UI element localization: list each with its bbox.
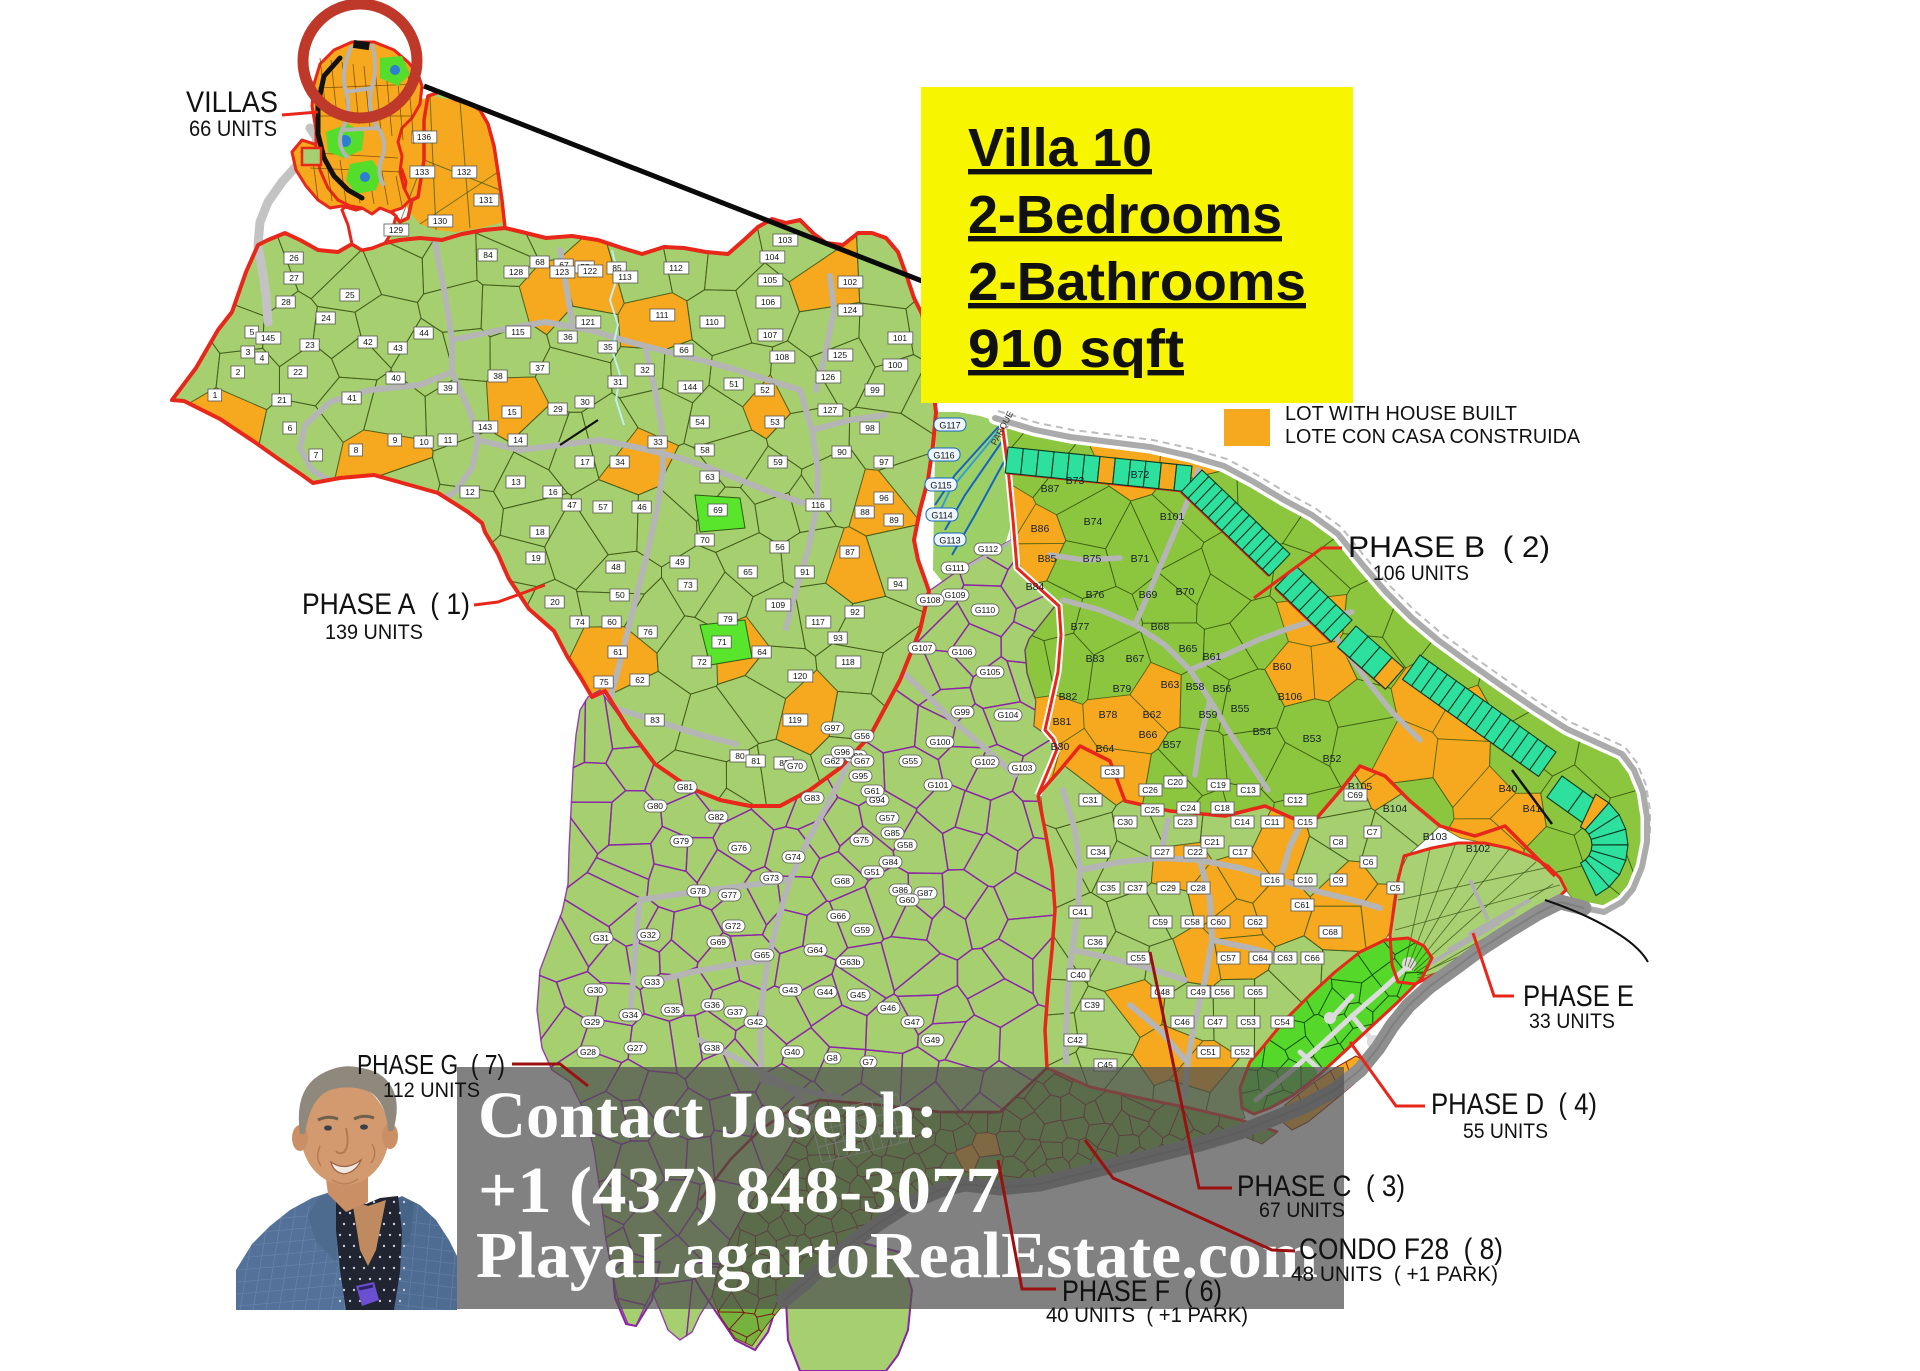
svg-text:G95: G95 — [852, 771, 868, 781]
svg-text:40 UNITS ( +1 PARK): 40 UNITS ( +1 PARK) — [1046, 1304, 1248, 1327]
svg-text:G60: G60 — [899, 895, 915, 905]
svg-text:124: 124 — [843, 305, 857, 315]
svg-text:B41: B41 — [1523, 803, 1542, 815]
svg-text:B102: B102 — [1466, 843, 1491, 855]
svg-text:23: 23 — [305, 340, 315, 350]
svg-text:C52: C52 — [1234, 1047, 1250, 1057]
svg-text:7: 7 — [314, 450, 319, 460]
svg-text:G28: G28 — [580, 1047, 596, 1057]
svg-text:C37: C37 — [1127, 883, 1143, 893]
svg-text:G101: G101 — [928, 780, 949, 790]
svg-text:G117: G117 — [939, 421, 960, 431]
svg-text:G65: G65 — [754, 950, 770, 960]
svg-text:71: 71 — [717, 637, 727, 647]
svg-text:119: 119 — [788, 715, 802, 725]
svg-text:32: 32 — [640, 365, 650, 375]
svg-text:G74: G74 — [785, 852, 801, 862]
svg-text:89: 89 — [889, 515, 899, 525]
svg-text:C61: C61 — [1294, 900, 1310, 910]
svg-text:31: 31 — [613, 377, 623, 387]
svg-text:G107: G107 — [912, 643, 933, 653]
svg-text:101: 101 — [893, 333, 907, 343]
svg-text:C28: C28 — [1190, 883, 1206, 893]
svg-text:G55: G55 — [902, 756, 918, 766]
svg-text:113: 113 — [618, 272, 632, 282]
svg-text:8: 8 — [354, 445, 359, 455]
svg-text:G105: G105 — [980, 667, 1001, 677]
svg-text:G78: G78 — [690, 886, 706, 896]
svg-text:C31: C31 — [1082, 795, 1098, 805]
svg-text:60: 60 — [607, 617, 617, 627]
svg-text:56: 56 — [775, 542, 785, 552]
svg-text:G83: G83 — [804, 793, 820, 803]
svg-text:G110: G110 — [975, 605, 995, 615]
svg-text:24: 24 — [321, 313, 331, 323]
svg-text:118: 118 — [841, 657, 855, 667]
svg-text:91: 91 — [800, 567, 810, 577]
svg-text:33 UNITS: 33 UNITS — [1529, 1010, 1615, 1033]
svg-text:133: 133 — [415, 167, 429, 177]
svg-text:14: 14 — [513, 435, 523, 445]
svg-text:G33: G33 — [644, 977, 660, 987]
svg-text:B53: B53 — [1303, 733, 1322, 745]
svg-text:C13: C13 — [1240, 785, 1256, 795]
svg-text:B79: B79 — [1113, 683, 1132, 695]
svg-text:27: 27 — [289, 273, 299, 283]
svg-text:92: 92 — [850, 607, 860, 617]
svg-text:CONDO F28 ( 8): CONDO F28 ( 8) — [1299, 1233, 1503, 1266]
svg-text:LOT WITH HOUSE BUILT: LOT WITH HOUSE BUILT — [1285, 403, 1517, 425]
svg-text:B70: B70 — [1176, 586, 1195, 598]
svg-text:116: 116 — [811, 500, 825, 510]
svg-text:C49: C49 — [1190, 987, 1206, 997]
svg-text:143: 143 — [478, 422, 492, 432]
svg-text:2-Bathrooms: 2-Bathrooms — [968, 252, 1306, 312]
svg-text:81: 81 — [751, 756, 761, 766]
svg-text:B77: B77 — [1071, 621, 1090, 633]
svg-text:B56: B56 — [1213, 683, 1232, 695]
svg-text:LOTE CON CASA CONSTRUIDA: LOTE CON CASA CONSTRUIDA — [1285, 426, 1581, 448]
svg-text:B84: B84 — [1026, 581, 1045, 593]
svg-text:66 UNITS: 66 UNITS — [189, 116, 277, 141]
svg-text:B71: B71 — [1131, 553, 1150, 565]
svg-text:120: 120 — [793, 671, 807, 681]
svg-text:B52: B52 — [1323, 753, 1342, 765]
svg-text:G84: G84 — [882, 857, 898, 867]
svg-text:84: 84 — [483, 250, 493, 260]
svg-text:C12: C12 — [1287, 795, 1303, 805]
svg-text:139 UNITS: 139 UNITS — [325, 621, 423, 644]
svg-text:55 UNITS: 55 UNITS — [1463, 1120, 1548, 1143]
svg-text:57: 57 — [598, 502, 608, 512]
svg-text:2: 2 — [236, 367, 241, 377]
svg-text:52: 52 — [760, 385, 770, 395]
svg-text:G35: G35 — [664, 1005, 680, 1015]
svg-text:C54: C54 — [1274, 1017, 1290, 1027]
svg-text:G37: G37 — [727, 1007, 743, 1017]
svg-text:C9: C9 — [1333, 875, 1344, 885]
svg-text:PHASE G ( 7): PHASE G ( 7) — [357, 1049, 505, 1080]
svg-text:B103: B103 — [1423, 831, 1448, 843]
svg-text:C18: C18 — [1214, 803, 1230, 813]
svg-text:100: 100 — [888, 360, 902, 370]
svg-text:79: 79 — [723, 614, 733, 624]
svg-text:C8: C8 — [1333, 837, 1344, 847]
svg-text:C40: C40 — [1070, 970, 1086, 980]
svg-text:70: 70 — [700, 535, 710, 545]
svg-text:132: 132 — [457, 167, 471, 177]
svg-text:9: 9 — [393, 435, 398, 445]
svg-text:Villa 10: Villa 10 — [968, 118, 1152, 178]
svg-text:C58: C58 — [1184, 917, 1200, 927]
svg-text:21: 21 — [277, 395, 287, 405]
svg-text:G70: G70 — [787, 761, 803, 771]
svg-text:G46: G46 — [880, 1003, 896, 1013]
svg-text:G104: G104 — [998, 710, 1019, 720]
svg-text:C14: C14 — [1234, 817, 1250, 827]
svg-text:130: 130 — [433, 216, 447, 226]
svg-text:B83: B83 — [1086, 653, 1105, 665]
svg-text:48: 48 — [611, 562, 621, 572]
svg-text:74: 74 — [575, 617, 585, 627]
svg-text:C11: C11 — [1265, 817, 1280, 827]
svg-text:C29: C29 — [1160, 883, 1176, 893]
svg-text:63: 63 — [705, 472, 715, 482]
svg-text:47: 47 — [567, 500, 577, 510]
svg-text:B58: B58 — [1186, 681, 1205, 693]
svg-text:11: 11 — [444, 435, 453, 445]
svg-text:C57: C57 — [1220, 953, 1236, 963]
svg-text:G63b: G63b — [840, 957, 861, 967]
svg-text:B57: B57 — [1163, 739, 1182, 751]
svg-text:49: 49 — [675, 557, 685, 567]
svg-text:C26: C26 — [1142, 785, 1158, 795]
svg-text:C65: C65 — [1247, 987, 1263, 997]
svg-text:C7: C7 — [1367, 827, 1378, 837]
svg-text:C15: C15 — [1297, 817, 1313, 827]
svg-text:B40: B40 — [1499, 783, 1518, 795]
svg-text:30: 30 — [580, 397, 590, 407]
svg-text:G106: G106 — [952, 647, 973, 657]
svg-text:22: 22 — [293, 367, 303, 377]
svg-text:C17: C17 — [1232, 847, 1248, 857]
svg-text:C10: C10 — [1297, 875, 1313, 885]
svg-text:19: 19 — [531, 553, 541, 563]
svg-text:G77: G77 — [721, 890, 737, 900]
svg-text:G29: G29 — [584, 1017, 600, 1027]
svg-text:B68: B68 — [1151, 621, 1170, 633]
svg-text:97: 97 — [879, 457, 889, 467]
svg-text:G32: G32 — [640, 930, 656, 940]
svg-text:G103: G103 — [1012, 763, 1033, 773]
svg-text:C24: C24 — [1180, 803, 1196, 813]
svg-text:+1 (437) 848-3077: +1 (437) 848-3077 — [478, 1154, 1000, 1227]
svg-text:38: 38 — [493, 371, 503, 381]
svg-text:110: 110 — [705, 317, 719, 327]
svg-text:G57: G57 — [879, 813, 895, 823]
svg-text:43: 43 — [393, 343, 403, 353]
svg-text:54: 54 — [695, 417, 705, 427]
svg-text:121: 121 — [581, 317, 595, 327]
svg-text:125: 125 — [833, 350, 847, 360]
svg-text:C41: C41 — [1072, 907, 1088, 917]
svg-text:80: 80 — [735, 751, 745, 761]
svg-text:G69: G69 — [710, 937, 726, 947]
svg-text:B73: B73 — [1066, 475, 1085, 487]
svg-text:10: 10 — [419, 437, 429, 447]
svg-text:G87: G87 — [917, 888, 933, 898]
svg-text:B81: B81 — [1053, 716, 1072, 728]
svg-text:26: 26 — [289, 253, 299, 263]
svg-text:G68: G68 — [834, 876, 850, 886]
svg-text:16: 16 — [548, 487, 558, 497]
svg-text:C63: C63 — [1277, 953, 1293, 963]
svg-text:103: 103 — [778, 235, 792, 245]
svg-text:99: 99 — [870, 385, 880, 395]
svg-text:G96: G96 — [834, 747, 850, 757]
svg-text:G75: G75 — [853, 835, 869, 845]
svg-text:75: 75 — [599, 677, 609, 687]
svg-text:C16: C16 — [1264, 875, 1280, 885]
svg-text:48 UNITS ( +1 PARK): 48 UNITS ( +1 PARK) — [1291, 1263, 1498, 1286]
svg-text:126: 126 — [821, 372, 835, 382]
svg-text:106: 106 — [761, 297, 775, 307]
svg-text:G58: G58 — [897, 840, 913, 850]
svg-text:C25: C25 — [1144, 805, 1160, 815]
svg-text:51: 51 — [729, 379, 739, 389]
svg-text:72: 72 — [697, 657, 707, 667]
svg-text:5: 5 — [250, 327, 255, 337]
svg-text:PHASE D ( 4): PHASE D ( 4) — [1431, 1088, 1597, 1121]
svg-text:G56: G56 — [854, 731, 870, 741]
svg-text:20: 20 — [550, 597, 560, 607]
svg-text:G85: G85 — [884, 828, 900, 838]
svg-text:65: 65 — [743, 567, 753, 577]
svg-text:B75: B75 — [1083, 553, 1102, 565]
svg-text:B61: B61 — [1203, 651, 1222, 663]
svg-text:G51: G51 — [864, 867, 880, 877]
svg-text:34: 34 — [615, 457, 625, 467]
svg-text:B74: B74 — [1084, 516, 1103, 528]
svg-text:96: 96 — [879, 493, 889, 503]
svg-text:G30: G30 — [587, 985, 603, 995]
svg-text:106 UNITS: 106 UNITS — [1373, 562, 1469, 585]
svg-text:37: 37 — [535, 363, 545, 373]
svg-text:41: 41 — [347, 393, 357, 403]
svg-text:145: 145 — [261, 333, 275, 343]
svg-text:127: 127 — [823, 405, 837, 415]
svg-text:25: 25 — [345, 290, 355, 300]
svg-text:29: 29 — [553, 404, 563, 414]
svg-text:G112: G112 — [978, 544, 998, 554]
svg-text:36: 36 — [563, 332, 573, 342]
svg-text:G34: G34 — [622, 1010, 638, 1020]
svg-text:83: 83 — [650, 715, 660, 725]
svg-text:G64: G64 — [807, 945, 823, 955]
svg-text:111: 111 — [656, 310, 669, 320]
svg-text:98: 98 — [865, 423, 875, 433]
svg-text:C68: C68 — [1322, 927, 1338, 937]
svg-text:76: 76 — [643, 627, 653, 637]
svg-text:G27: G27 — [627, 1043, 643, 1053]
svg-text:G73: G73 — [763, 873, 779, 883]
svg-text:G67: G67 — [854, 756, 870, 766]
svg-text:44: 44 — [419, 328, 429, 338]
svg-text:G81: G81 — [677, 782, 693, 792]
svg-text:G82: G82 — [708, 812, 724, 822]
svg-text:B69: B69 — [1139, 589, 1158, 601]
svg-text:G115: G115 — [930, 481, 951, 491]
svg-text:C30: C30 — [1117, 817, 1133, 827]
svg-text:46: 46 — [637, 502, 647, 512]
svg-text:G79: G79 — [673, 836, 689, 846]
svg-text:C64: C64 — [1252, 953, 1268, 963]
svg-text:C46: C46 — [1174, 1017, 1190, 1027]
svg-text:58: 58 — [700, 445, 710, 455]
svg-text:1: 1 — [213, 390, 218, 400]
svg-text:104: 104 — [765, 252, 779, 262]
svg-text:G80: G80 — [647, 801, 663, 811]
svg-text:61: 61 — [613, 647, 623, 657]
svg-text:50: 50 — [615, 590, 625, 600]
svg-text:G116: G116 — [933, 451, 954, 461]
svg-text:112 UNITS: 112 UNITS — [383, 1079, 480, 1102]
svg-text:C6: C6 — [1363, 857, 1374, 867]
svg-text:G59: G59 — [854, 925, 870, 935]
svg-text:C5: C5 — [1390, 883, 1401, 893]
svg-text:73: 73 — [683, 580, 693, 590]
svg-text:B104: B104 — [1383, 803, 1408, 815]
svg-text:G114: G114 — [931, 511, 952, 521]
svg-text:G100: G100 — [930, 737, 951, 747]
svg-text:B64: B64 — [1096, 743, 1115, 755]
svg-text:G61: G61 — [864, 786, 880, 796]
svg-text:C33: C33 — [1104, 767, 1120, 777]
svg-text:136: 136 — [417, 132, 431, 142]
svg-text:B55: B55 — [1231, 703, 1250, 715]
svg-text:123: 123 — [555, 267, 569, 277]
svg-text:G7: G7 — [862, 1057, 874, 1067]
svg-text:B80: B80 — [1051, 741, 1070, 753]
svg-text:B82: B82 — [1059, 691, 1078, 703]
svg-text:88: 88 — [860, 507, 870, 517]
svg-text:B86: B86 — [1031, 523, 1050, 535]
svg-text:B78: B78 — [1099, 709, 1118, 721]
svg-text:C35: C35 — [1100, 883, 1116, 893]
svg-text:3: 3 — [246, 347, 251, 357]
svg-text:PHASE E: PHASE E — [1523, 980, 1634, 1013]
svg-text:C27: C27 — [1154, 847, 1170, 857]
svg-text:C20: C20 — [1167, 777, 1183, 787]
svg-text:C21: C21 — [1204, 837, 1220, 847]
svg-text:G109: G109 — [945, 590, 966, 600]
svg-text:C53: C53 — [1240, 1017, 1256, 1027]
svg-text:105: 105 — [763, 275, 777, 285]
svg-text:42: 42 — [363, 337, 373, 347]
svg-text:53: 53 — [770, 417, 780, 427]
svg-text:13: 13 — [511, 477, 521, 487]
svg-text:C69: C69 — [1347, 790, 1363, 800]
svg-text:67 UNITS: 67 UNITS — [1259, 1199, 1345, 1222]
svg-text:62: 62 — [635, 675, 645, 685]
svg-text:59: 59 — [773, 457, 783, 467]
svg-text:B60: B60 — [1273, 661, 1292, 673]
svg-text:G72: G72 — [725, 921, 741, 931]
svg-text:G49: G49 — [924, 1035, 940, 1045]
svg-text:G8: G8 — [826, 1053, 838, 1063]
svg-text:112: 112 — [669, 263, 683, 273]
svg-text:131: 131 — [479, 195, 493, 205]
svg-text:40: 40 — [391, 373, 401, 383]
svg-text:117: 117 — [811, 617, 825, 627]
svg-text:G113: G113 — [939, 536, 960, 546]
svg-text:C60: C60 — [1210, 917, 1226, 927]
svg-text:G102: G102 — [975, 757, 996, 767]
svg-text:Contact Joseph:: Contact Joseph: — [478, 1079, 938, 1152]
svg-text:93: 93 — [833, 633, 843, 643]
svg-text:39: 39 — [443, 383, 453, 393]
svg-text:90: 90 — [837, 447, 847, 457]
svg-text:6: 6 — [288, 423, 293, 433]
svg-text:C36: C36 — [1087, 937, 1103, 947]
svg-text:G111: G111 — [945, 563, 965, 573]
svg-text:C22: C22 — [1187, 847, 1203, 857]
svg-text:B101: B101 — [1160, 511, 1185, 523]
svg-text:C42: C42 — [1067, 1035, 1083, 1045]
svg-text:102: 102 — [843, 277, 857, 287]
svg-text:64: 64 — [757, 647, 767, 657]
svg-text:69: 69 — [713, 505, 723, 515]
svg-text:G38: G38 — [704, 1043, 720, 1053]
svg-text:B65: B65 — [1179, 643, 1198, 655]
svg-text:G40: G40 — [784, 1047, 800, 1057]
svg-text:B87: B87 — [1041, 483, 1060, 495]
svg-text:VILLAS: VILLAS — [186, 86, 278, 119]
svg-text:C56: C56 — [1214, 987, 1230, 997]
svg-text:G108: G108 — [920, 595, 941, 605]
svg-text:G31: G31 — [593, 933, 609, 943]
svg-text:C34: C34 — [1090, 847, 1106, 857]
svg-text:B76: B76 — [1086, 589, 1105, 601]
svg-text:B62: B62 — [1143, 709, 1162, 721]
svg-text:G36: G36 — [704, 1000, 720, 1010]
svg-text:15: 15 — [507, 407, 517, 417]
svg-text:G66: G66 — [830, 911, 846, 921]
svg-text:C55: C55 — [1130, 953, 1146, 963]
svg-text:128: 128 — [509, 267, 523, 277]
svg-text:87: 87 — [845, 547, 855, 557]
svg-text:129: 129 — [389, 225, 403, 235]
svg-text:C47: C47 — [1207, 1017, 1223, 1027]
svg-text:122: 122 — [583, 266, 597, 276]
svg-text:G43: G43 — [782, 985, 798, 995]
svg-text:C62: C62 — [1247, 917, 1263, 927]
svg-text:C51: C51 — [1200, 1047, 1216, 1057]
svg-text:PHASE B ( 2): PHASE B ( 2) — [1348, 531, 1550, 564]
svg-text:C23: C23 — [1177, 817, 1193, 827]
svg-text:18: 18 — [535, 527, 545, 537]
svg-text:C39: C39 — [1084, 1000, 1100, 1010]
svg-text:35: 35 — [603, 342, 613, 352]
svg-text:G45: G45 — [850, 990, 866, 1000]
svg-text:C59: C59 — [1152, 917, 1168, 927]
svg-text:G44: G44 — [817, 987, 833, 997]
svg-text:B85: B85 — [1038, 553, 1057, 565]
svg-text:G99: G99 — [954, 707, 970, 717]
svg-text:4: 4 — [260, 353, 265, 363]
svg-text:B106: B106 — [1278, 691, 1303, 703]
svg-text:108: 108 — [775, 352, 789, 362]
